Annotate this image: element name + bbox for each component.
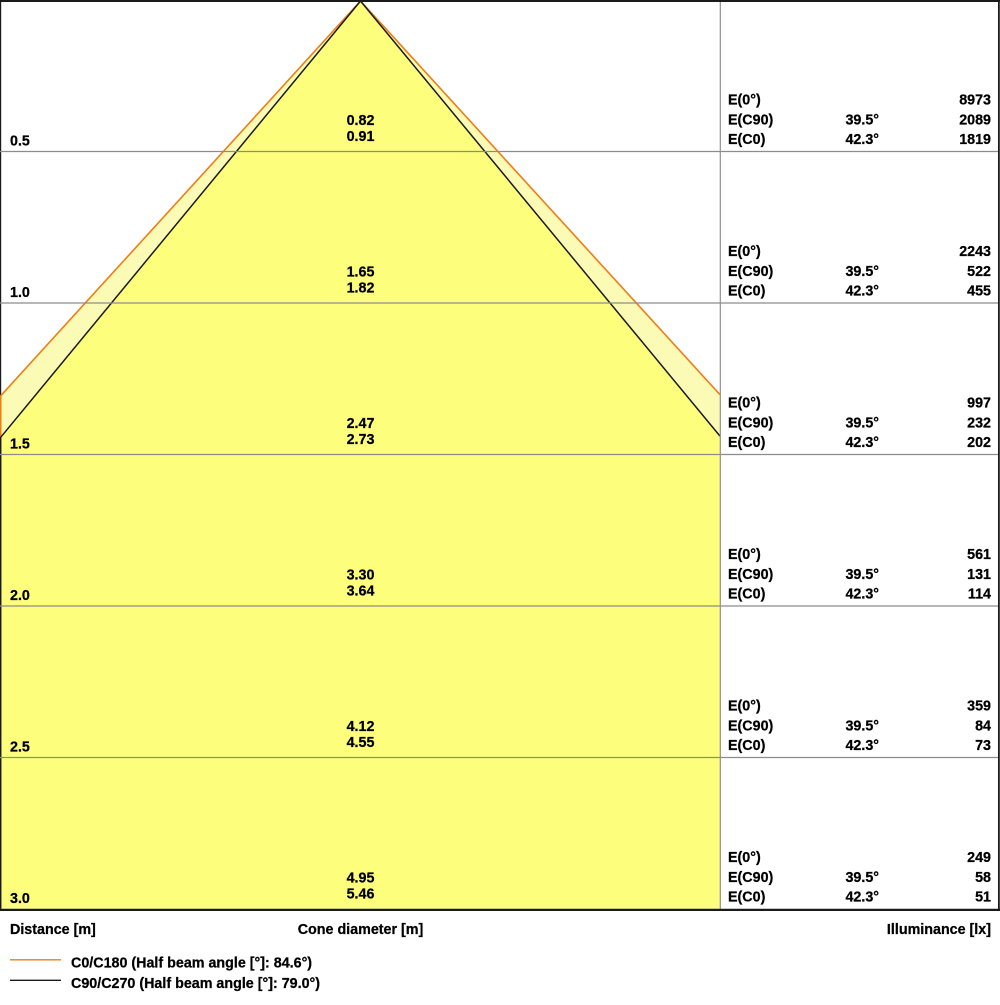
svg-text:84: 84 bbox=[975, 718, 991, 734]
svg-text:2.5: 2.5 bbox=[10, 740, 30, 756]
svg-text:1.65: 1.65 bbox=[347, 264, 375, 280]
svg-text:1819: 1819 bbox=[959, 132, 991, 148]
svg-text:2.0: 2.0 bbox=[10, 588, 30, 604]
svg-text:E(C0): E(C0) bbox=[728, 889, 766, 905]
svg-text:42.3°: 42.3° bbox=[845, 435, 879, 451]
svg-text:E(C90): E(C90) bbox=[728, 415, 774, 431]
svg-text:39.5°: 39.5° bbox=[845, 112, 879, 128]
svg-text:E(C90): E(C90) bbox=[728, 718, 774, 734]
svg-text:C90/C270 (Half beam angle [°]:: C90/C270 (Half beam angle [°]: 79.0°) bbox=[71, 976, 320, 992]
svg-text:E(0°): E(0°) bbox=[728, 396, 761, 412]
svg-text:E(C0): E(C0) bbox=[728, 586, 766, 602]
svg-text:3.0: 3.0 bbox=[10, 891, 30, 907]
svg-text:39.5°: 39.5° bbox=[845, 870, 879, 886]
svg-text:455: 455 bbox=[967, 283, 991, 299]
svg-text:2.47: 2.47 bbox=[347, 416, 375, 432]
svg-text:39.5°: 39.5° bbox=[845, 415, 879, 431]
svg-text:E(0°): E(0°) bbox=[728, 93, 761, 109]
svg-text:522: 522 bbox=[967, 264, 991, 280]
svg-text:39.5°: 39.5° bbox=[845, 567, 879, 583]
svg-text:1.0: 1.0 bbox=[10, 285, 30, 301]
svg-text:E(0°): E(0°) bbox=[728, 699, 761, 715]
svg-text:Illuminance [lx]: Illuminance [lx] bbox=[887, 922, 991, 938]
svg-text:3.30: 3.30 bbox=[347, 567, 375, 583]
svg-text:1.82: 1.82 bbox=[347, 281, 375, 297]
svg-text:4.12: 4.12 bbox=[347, 719, 375, 735]
svg-text:42.3°: 42.3° bbox=[845, 738, 879, 754]
svg-text:0.82: 0.82 bbox=[347, 113, 375, 129]
svg-text:E(C90): E(C90) bbox=[728, 264, 774, 280]
svg-text:Cone diameter [m]: Cone diameter [m] bbox=[298, 922, 424, 938]
svg-text:997: 997 bbox=[967, 396, 991, 412]
svg-text:42.3°: 42.3° bbox=[845, 283, 879, 299]
svg-text:Distance [m]: Distance [m] bbox=[10, 922, 96, 938]
svg-text:2.73: 2.73 bbox=[347, 432, 375, 448]
svg-text:E(C0): E(C0) bbox=[728, 738, 766, 754]
svg-text:E(0°): E(0°) bbox=[728, 850, 761, 866]
svg-text:42.3°: 42.3° bbox=[845, 132, 879, 148]
svg-text:202: 202 bbox=[967, 435, 991, 451]
svg-text:3.64: 3.64 bbox=[347, 584, 375, 600]
svg-text:42.3°: 42.3° bbox=[845, 586, 879, 602]
svg-text:E(C90): E(C90) bbox=[728, 112, 774, 128]
svg-text:232: 232 bbox=[967, 415, 991, 431]
svg-text:E(C0): E(C0) bbox=[728, 132, 766, 148]
svg-text:E(0°): E(0°) bbox=[728, 547, 761, 563]
svg-text:5.46: 5.46 bbox=[347, 887, 375, 903]
svg-text:561: 561 bbox=[967, 547, 991, 563]
svg-text:4.95: 4.95 bbox=[347, 870, 375, 886]
svg-text:73: 73 bbox=[975, 738, 991, 754]
svg-text:39.5°: 39.5° bbox=[845, 718, 879, 734]
svg-text:249: 249 bbox=[967, 850, 991, 866]
svg-text:E(C90): E(C90) bbox=[728, 870, 774, 886]
svg-text:114: 114 bbox=[968, 586, 991, 602]
svg-text:42.3°: 42.3° bbox=[845, 889, 879, 905]
svg-text:0.91: 0.91 bbox=[347, 129, 375, 145]
svg-text:58: 58 bbox=[975, 870, 991, 886]
svg-text:0.5: 0.5 bbox=[10, 134, 30, 150]
svg-text:E(0°): E(0°) bbox=[728, 244, 761, 260]
svg-text:2089: 2089 bbox=[959, 112, 991, 128]
svg-text:E(C0): E(C0) bbox=[728, 283, 766, 299]
svg-text:131: 131 bbox=[967, 567, 991, 583]
svg-text:2243: 2243 bbox=[959, 244, 991, 260]
svg-text:51: 51 bbox=[975, 889, 991, 905]
svg-text:C0/C180 (Half beam angle [°]:: C0/C180 (Half beam angle [°]: 84.6°) bbox=[71, 955, 312, 971]
svg-text:E(C90): E(C90) bbox=[728, 567, 774, 583]
svg-text:E(C0): E(C0) bbox=[728, 435, 766, 451]
svg-text:359: 359 bbox=[967, 699, 991, 715]
svg-text:8973: 8973 bbox=[959, 93, 991, 109]
svg-text:4.55: 4.55 bbox=[347, 735, 375, 751]
svg-text:1.5: 1.5 bbox=[10, 437, 30, 453]
svg-text:39.5°: 39.5° bbox=[845, 264, 879, 280]
